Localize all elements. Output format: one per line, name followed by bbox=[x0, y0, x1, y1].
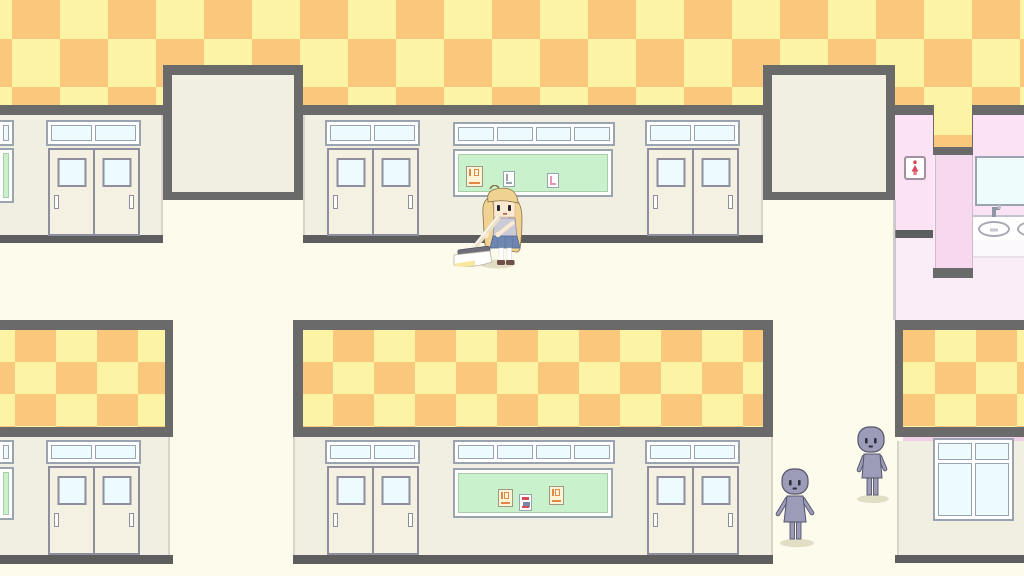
block-frame bbox=[293, 320, 303, 437]
player-girl-sweeping[interactable] bbox=[450, 185, 528, 270]
block-frame bbox=[0, 427, 173, 437]
checker-wall-bottom-right bbox=[903, 330, 1024, 427]
npc-student-back[interactable] bbox=[851, 424, 893, 504]
restroom-pillar-cap bbox=[933, 268, 973, 278]
classroom-door[interactable] bbox=[48, 148, 140, 236]
classroom-door[interactable] bbox=[327, 466, 419, 555]
transom-window-row bbox=[453, 122, 615, 146]
poster bbox=[498, 489, 513, 507]
partial-transom-window bbox=[0, 120, 14, 146]
alcove-block-left bbox=[163, 65, 303, 200]
transom-window bbox=[325, 440, 420, 464]
poster bbox=[547, 173, 559, 188]
classroom-door[interactable] bbox=[327, 148, 419, 236]
transom-window bbox=[325, 120, 420, 146]
window bbox=[933, 438, 1014, 521]
block-frame bbox=[895, 320, 903, 437]
transom-window-row bbox=[453, 440, 615, 464]
poster bbox=[549, 486, 564, 505]
female-restroom-icon bbox=[909, 160, 921, 176]
bulletin-board[interactable] bbox=[453, 468, 613, 518]
classroom-door[interactable] bbox=[48, 466, 140, 555]
restroom-passage-notch bbox=[933, 105, 973, 147]
baseboard-top-left bbox=[0, 235, 163, 243]
baseboard-bottom-center bbox=[293, 555, 773, 564]
classroom-door[interactable] bbox=[647, 148, 739, 236]
sink-basin bbox=[978, 221, 1010, 237]
sink-basin bbox=[1017, 221, 1024, 237]
restroom-inner-wall bbox=[973, 115, 1024, 158]
game-viewport bbox=[0, 0, 1024, 576]
character-shadow bbox=[857, 495, 889, 503]
restroom-baseboard bbox=[895, 230, 933, 238]
baseboard-bottom-right bbox=[895, 555, 1024, 563]
classroom-door[interactable] bbox=[647, 466, 739, 555]
checker-wall-bottom-center bbox=[303, 330, 763, 427]
partial-bulletin-board bbox=[0, 148, 14, 203]
checker-wall-bottom-left bbox=[0, 330, 165, 427]
transom-window bbox=[645, 120, 740, 146]
faucet-icon bbox=[988, 204, 1002, 217]
restroom-mirror bbox=[975, 156, 1024, 206]
block-frame bbox=[165, 320, 173, 437]
partial-transom-window bbox=[0, 440, 14, 464]
transom-window bbox=[645, 440, 740, 464]
character-shadow bbox=[780, 539, 814, 547]
block-frame bbox=[293, 427, 773, 437]
poster bbox=[519, 494, 532, 511]
baseboard-bottom-left bbox=[0, 555, 173, 564]
transom-window bbox=[46, 120, 141, 146]
npc-student-front[interactable] bbox=[773, 466, 817, 548]
sink-counter-front bbox=[973, 240, 1024, 258]
baseboard-top-center bbox=[303, 235, 763, 243]
female-restroom-sign bbox=[904, 156, 926, 180]
block-frame bbox=[895, 427, 1024, 437]
restroom-pillar bbox=[935, 155, 973, 268]
sink-counter bbox=[973, 215, 1024, 240]
block-frame bbox=[293, 320, 773, 330]
transom-window bbox=[46, 440, 141, 464]
floor-divider-line bbox=[893, 200, 896, 320]
partial-bulletin-board bbox=[0, 467, 14, 520]
block-frame bbox=[763, 320, 773, 437]
block-frame bbox=[895, 320, 1024, 330]
poster bbox=[466, 166, 483, 187]
block-frame bbox=[0, 320, 173, 330]
alcove-block-right bbox=[763, 65, 895, 200]
